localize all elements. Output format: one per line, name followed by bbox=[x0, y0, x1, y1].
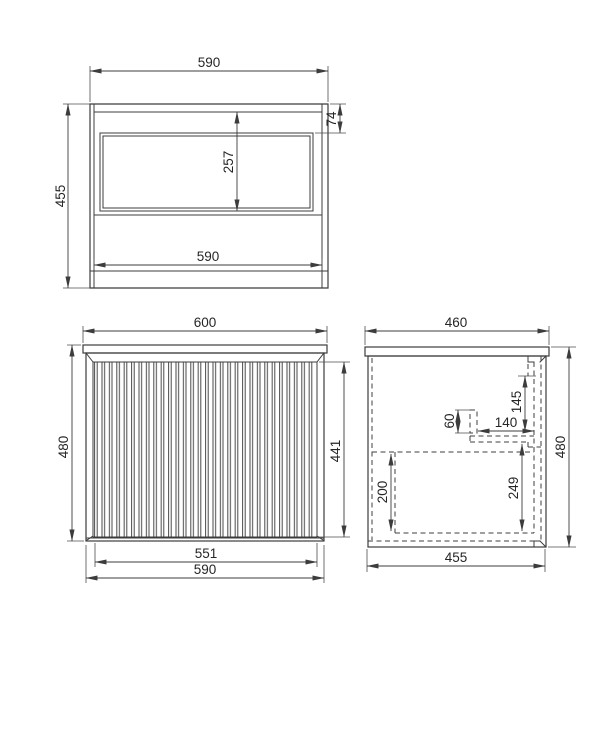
dim-label-panel-height: 441 bbox=[328, 440, 343, 463]
dim-label-overall-depth: 460 bbox=[445, 315, 468, 330]
dim-label-opening-depth: 257 bbox=[221, 151, 236, 174]
side-cutout-box bbox=[470, 410, 477, 433]
dim-label-cabinet-depth: 455 bbox=[445, 550, 468, 565]
dim-label-cabinet-width: 590 bbox=[194, 562, 217, 577]
dim-label-top-depth: 455 bbox=[53, 185, 68, 208]
dim-label-overall-height: 480 bbox=[56, 436, 71, 459]
side-hidden-lines bbox=[368, 356, 541, 541]
dim-label-cutout-depth: 140 bbox=[495, 415, 518, 430]
side-extension-lines bbox=[365, 326, 576, 572]
top-view: 590 455 74 257 590 bbox=[53, 55, 346, 288]
dim-label-top-width-bottom: 590 bbox=[197, 249, 220, 264]
drawing-canvas: 590 455 74 257 590 600 480 441 551 590 bbox=[0, 0, 600, 750]
top-view-opening bbox=[100, 133, 313, 211]
front-view: 600 480 441 551 590 bbox=[56, 315, 350, 583]
dim-label-top-width: 590 bbox=[198, 55, 221, 70]
dim-label-cutout-height: 60 bbox=[442, 413, 457, 428]
dim-label-overall-width: 600 bbox=[194, 315, 217, 330]
dim-label-panel-width: 551 bbox=[195, 546, 218, 561]
dim-label-drawer-inner-height: 200 bbox=[375, 481, 390, 504]
side-shelf-rail bbox=[470, 436, 541, 447]
side-view: 460 480 145 60 140 200 249 455 bbox=[365, 315, 576, 572]
side-countertop bbox=[365, 347, 549, 356]
dim-label-hanger-offset: 145 bbox=[509, 391, 524, 414]
dim-label-back-rail: 74 bbox=[324, 111, 339, 127]
dim-label-cavity-height: 249 bbox=[506, 477, 521, 500]
front-fluted-texture bbox=[94, 363, 316, 537]
front-countertop bbox=[83, 345, 327, 353]
dim-label-side-height: 480 bbox=[553, 436, 568, 459]
technical-drawing: 590 455 74 257 590 600 480 441 551 590 bbox=[0, 0, 600, 750]
side-rear-notches bbox=[528, 356, 546, 547]
